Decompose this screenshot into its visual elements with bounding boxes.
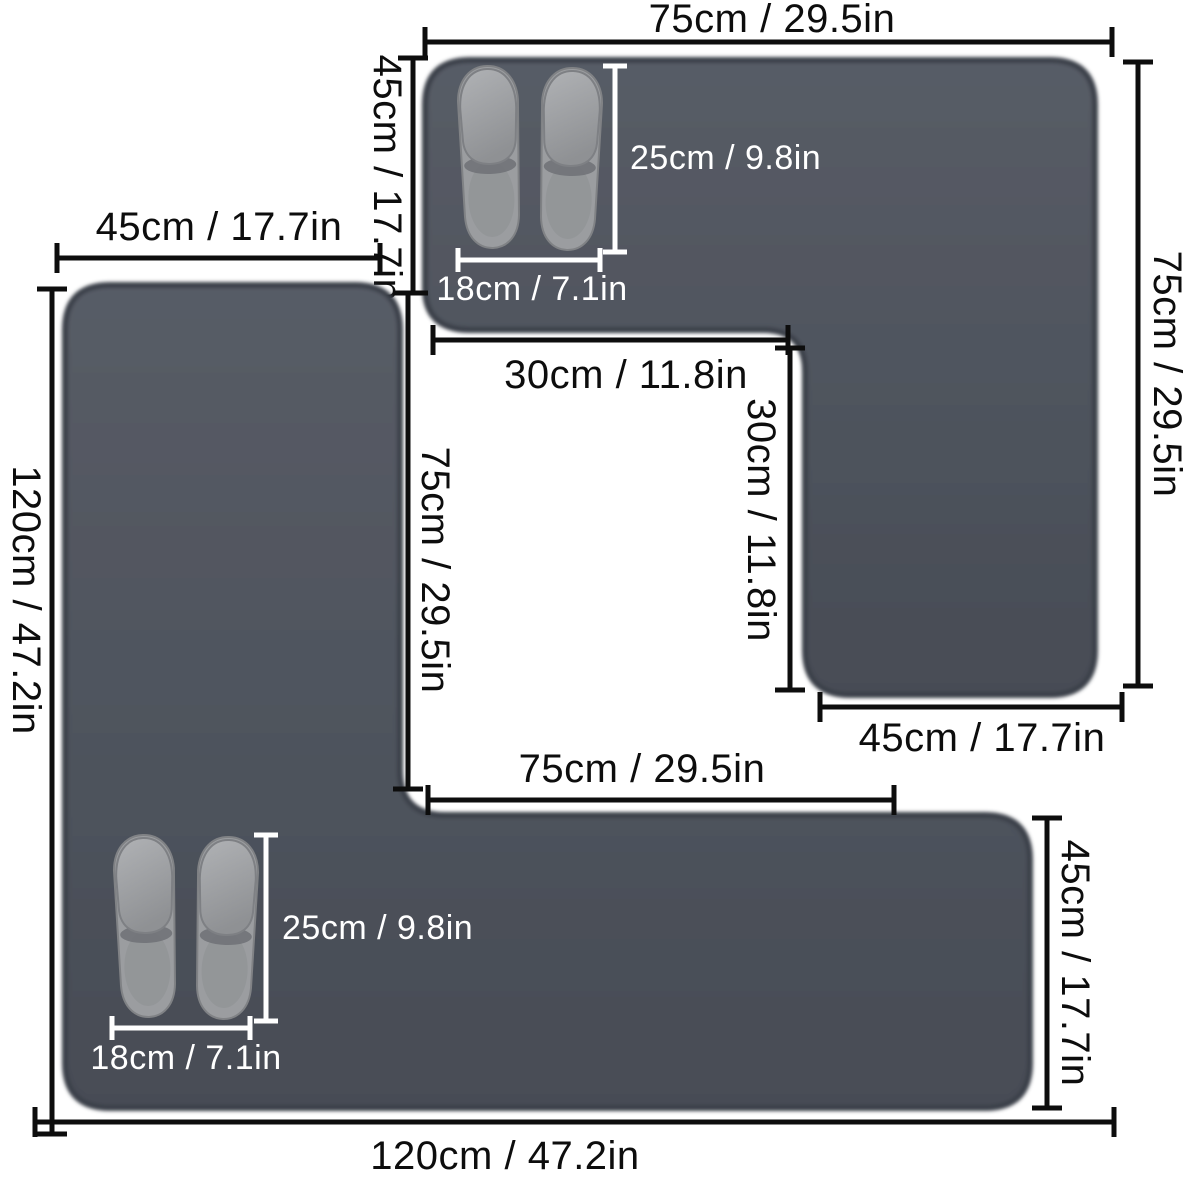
dim-top-mat-left-height: 45cm / 17.7in [365, 55, 428, 302]
dim-label-top-mat-inner-width: 30cm / 11.8in [504, 353, 748, 397]
dim-label-top-mat-right-height: 75cm / 29.5in [1145, 251, 1189, 498]
dim-bottom-mat-right-height: 45cm / 17.7in [1032, 818, 1097, 1108]
dim-label-bottom-mat-right-height: 45cm / 17.7in [1053, 840, 1097, 1087]
dim-label-bottom-mat-top-width: 45cm / 17.7in [96, 205, 343, 249]
dim-label-top-mat-bottom-width: 45cm / 17.7in [859, 716, 1106, 760]
dim-label-bottom-mat-slipper-width: 18cm / 7.1in [90, 1039, 281, 1077]
dim-label-bottom-mat-left-height: 120cm / 47.2in [4, 465, 48, 734]
dim-top-mat-top-width: 75cm / 29.5in [425, 0, 1112, 57]
dim-label-bottom-mat-slipper-length: 25cm / 9.8in [282, 909, 473, 947]
dim-label-top-mat-top-width: 75cm / 29.5in [649, 0, 896, 41]
dim-bottom-mat-inner-width: 75cm / 29.5in [428, 747, 894, 815]
dim-label-bottom-mat-inner-height: 75cm / 29.5in [413, 447, 457, 694]
product-dimension-diagram: 75cm / 29.5in 45cm / 17.7in 75cm / 29.5i… [0, 0, 1200, 1200]
dim-label-top-mat-left-height: 45cm / 17.7in [365, 55, 409, 302]
dim-label-bottom-mat-inner-width: 75cm / 29.5in [519, 747, 766, 791]
dim-top-mat-right-height: 75cm / 29.5in [1123, 62, 1189, 686]
dim-top-mat-bottom-width: 45cm / 17.7in [820, 692, 1122, 760]
dim-label-top-mat-inner-height: 30cm / 11.8in [739, 398, 783, 642]
diagram-canvas: 75cm / 29.5in 45cm / 17.7in 75cm / 29.5i… [0, 0, 1200, 1200]
dim-top-mat-inner-width: 30cm / 11.8in [433, 325, 788, 397]
dim-label-top-mat-slipper-length: 25cm / 9.8in [630, 139, 821, 177]
dim-bottom-mat-bottom-width: 120cm / 47.2in [35, 1107, 1114, 1178]
dim-bottom-mat-top-width: 45cm / 17.7in [57, 205, 380, 273]
dim-label-top-mat-slipper-width: 18cm / 7.1in [436, 270, 627, 308]
dim-top-mat-inner-height: 30cm / 11.8in [739, 348, 805, 690]
dim-label-bottom-mat-bottom-width: 120cm / 47.2in [370, 1134, 639, 1178]
dim-bottom-mat-left-height: 120cm / 47.2in [4, 289, 67, 1134]
